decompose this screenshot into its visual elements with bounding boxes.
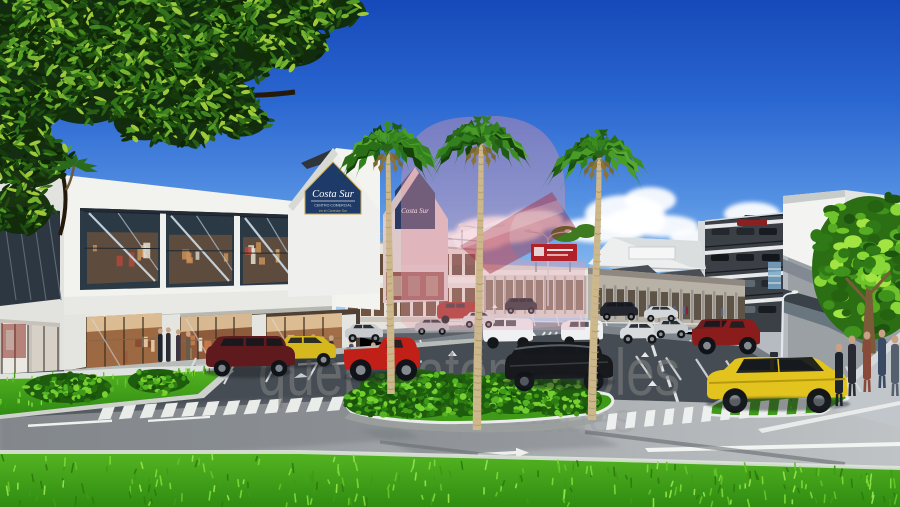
svg-text:en el Corredor Sur: en el Corredor Sur — [319, 209, 348, 213]
svg-text:Costa Sur: Costa Sur — [312, 189, 355, 200]
svg-text:CENTRO COMERCIAL: CENTRO COMERCIAL — [314, 204, 352, 208]
